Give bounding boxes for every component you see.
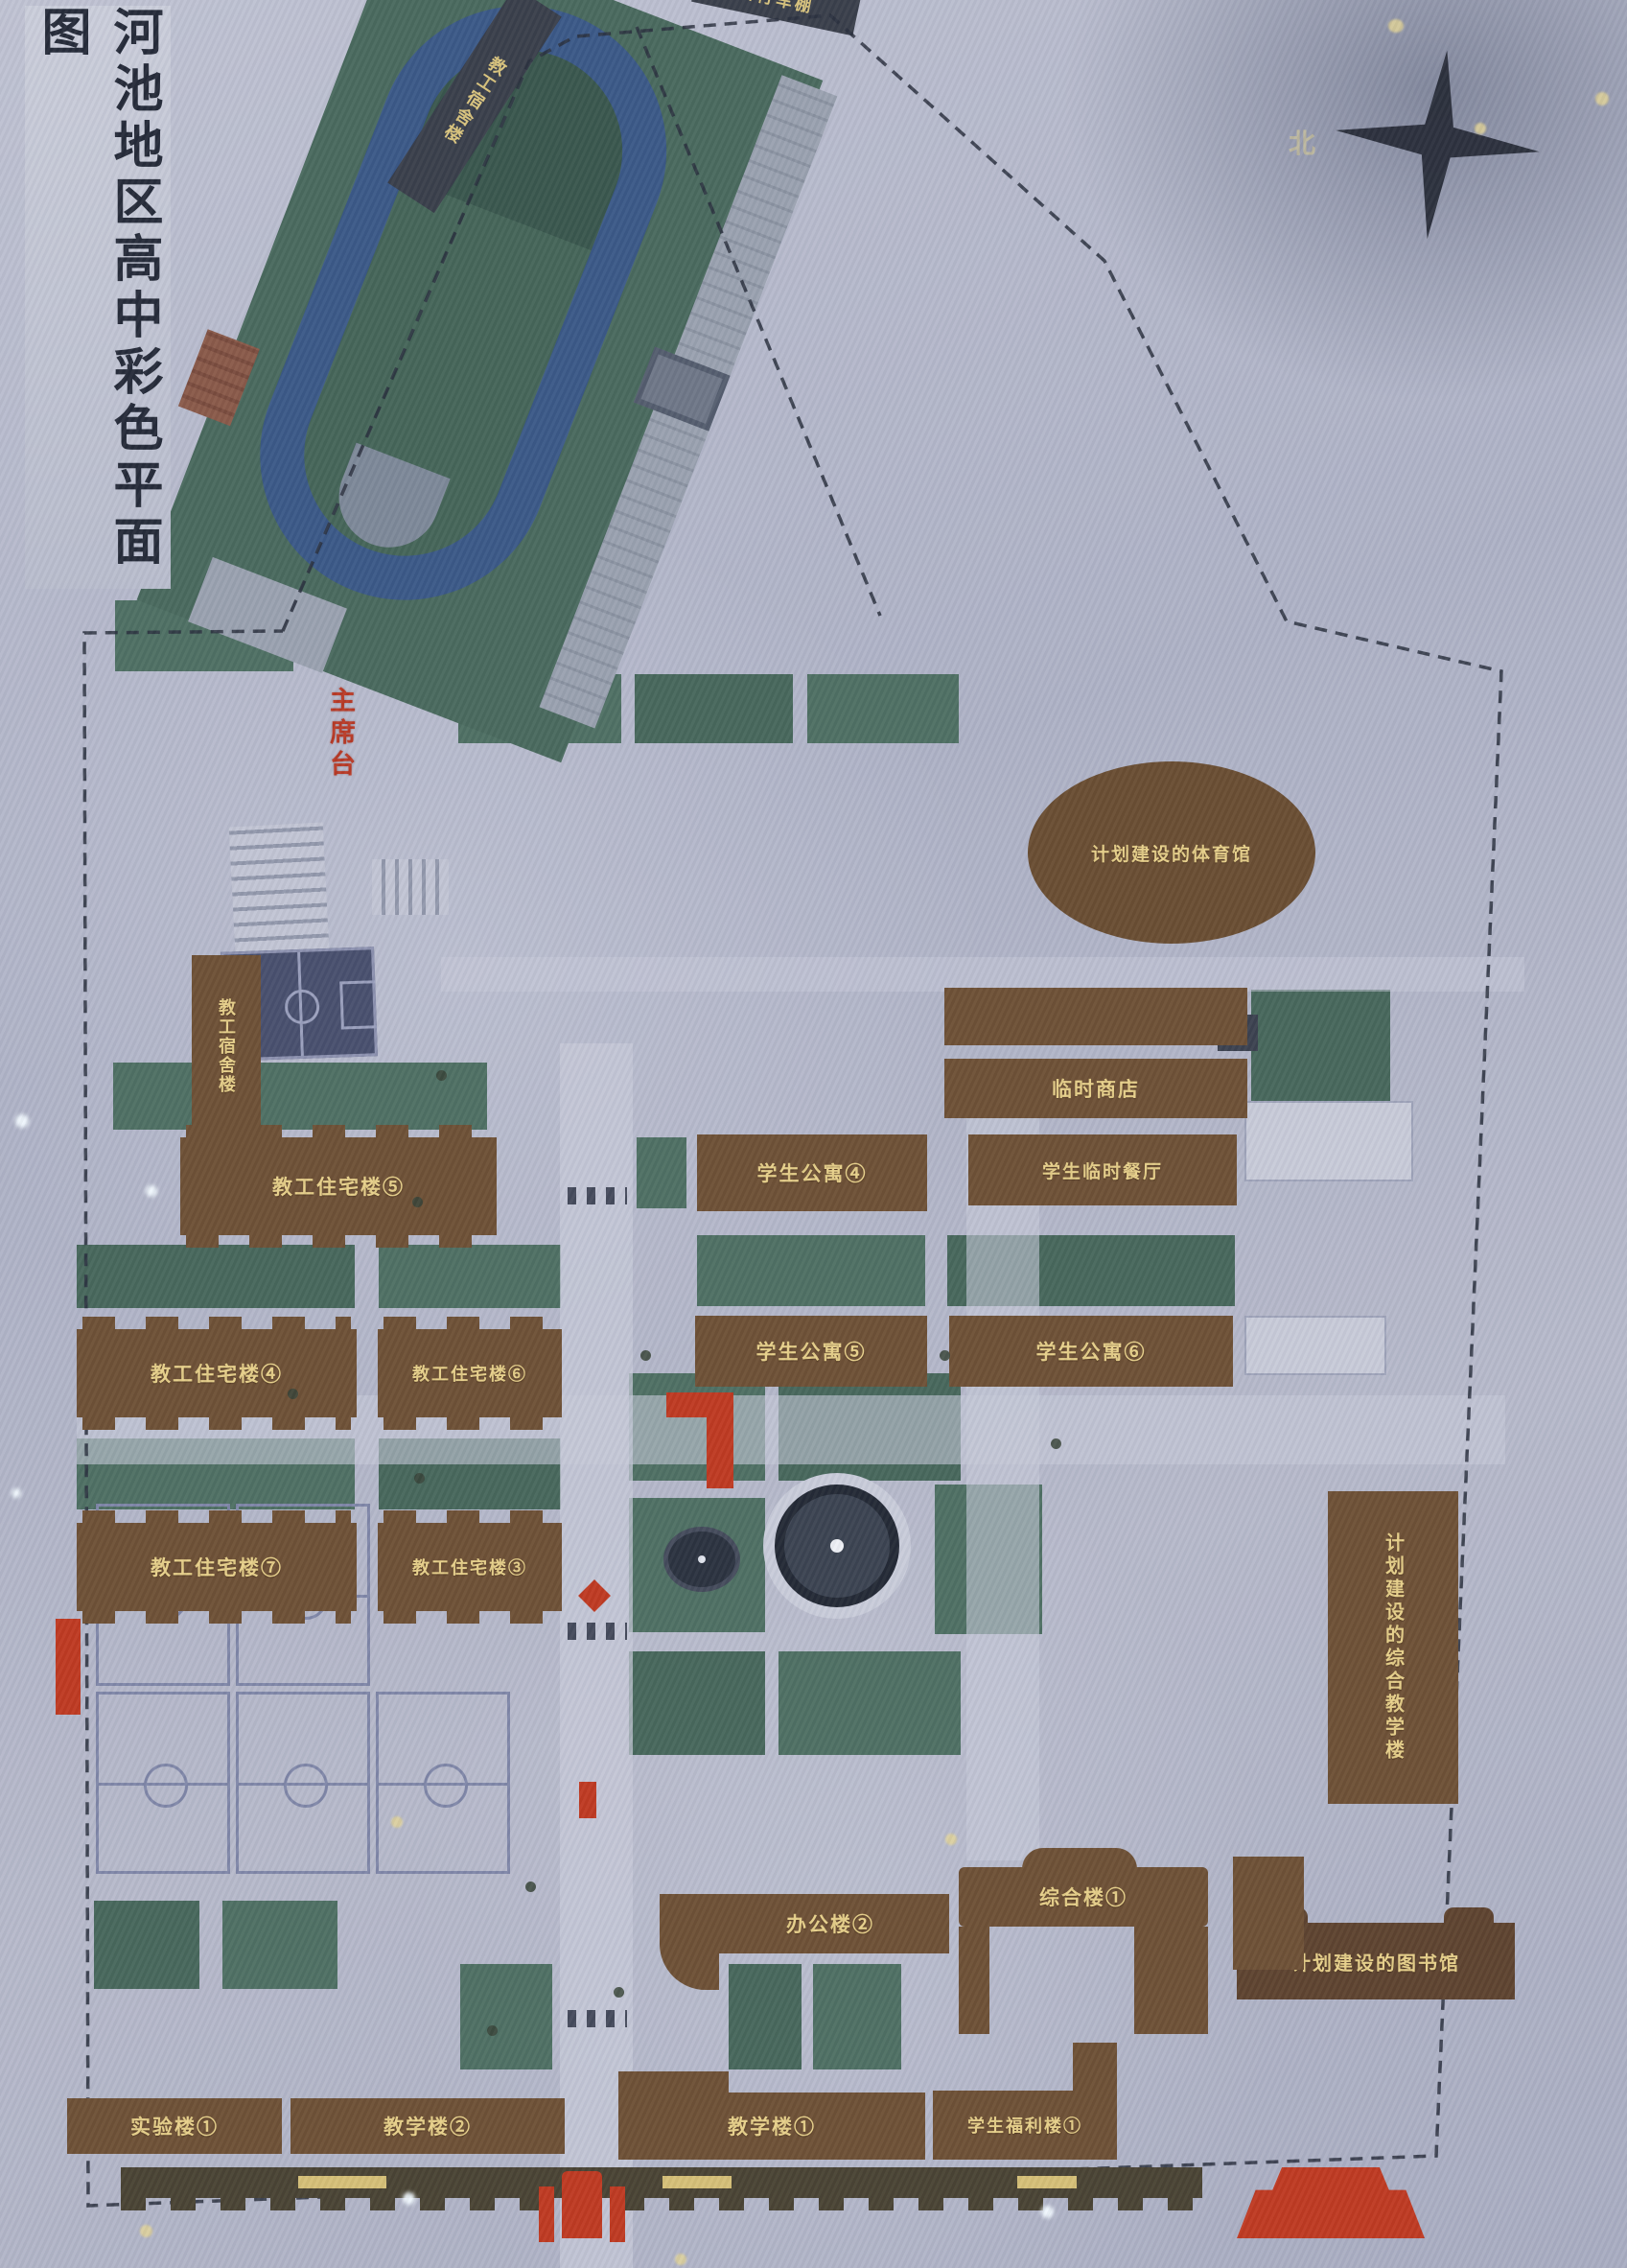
welfare-1-label: 学生福利楼① (967, 2113, 1082, 2138)
tree (288, 1389, 298, 1399)
photo-speck (1595, 92, 1609, 105)
lab-1-label: 实验楼① (130, 2112, 219, 2140)
track-dzone (324, 442, 451, 562)
lawn (77, 1245, 355, 1308)
complex-1-arch (1022, 1848, 1137, 1869)
plaza-ring (775, 1485, 899, 1607)
student-apartment-6: 学生公寓⑥ (949, 1316, 1233, 1387)
office-2-label: 办公楼② (786, 1909, 874, 1938)
student-apartment-6-label: 学生公寓⑥ (1036, 1337, 1147, 1366)
student-apartment-4: 学生公寓④ (697, 1134, 927, 1211)
complex-1-left-wing (959, 1927, 989, 2034)
lawn (637, 1137, 686, 1208)
tree (487, 2025, 498, 2036)
stairs (229, 823, 330, 954)
lawn (697, 1235, 925, 1306)
south-gate (539, 2171, 625, 2242)
crosswalk (568, 1187, 627, 1204)
lawn (460, 1964, 552, 2069)
photo-speck (1388, 19, 1404, 33)
planned-library-label: 计划建设的图书馆 (1291, 1948, 1460, 1976)
complex-1-label: 综合楼① (1039, 1882, 1127, 1911)
tree (525, 1882, 536, 1892)
lawn (113, 1063, 487, 1130)
photo-speck (15, 1114, 29, 1128)
staff-residence-5: 教工住宅楼⑤ (180, 1137, 497, 1235)
striped-walk (372, 859, 449, 915)
gate-roof (562, 2171, 602, 2238)
student-canteen-building: 学生临时餐厅 (968, 1134, 1237, 1205)
crosswalk (568, 1623, 627, 1640)
photo-speck (945, 1834, 957, 1845)
lawn (813, 1964, 901, 2069)
lawn (807, 674, 959, 743)
lab-building-1: 实验楼① (67, 2098, 282, 2154)
lawn (222, 1901, 337, 1989)
temp-shop-label: 临时商店 (1052, 1074, 1140, 1103)
lawn (379, 1245, 561, 1308)
staff-dorm-tower: 教工宿舍楼 (192, 955, 261, 1137)
complex-building-1: 综合楼① (959, 1846, 1208, 2034)
planned-gymnasium: 计划建设的体育馆 (1028, 761, 1315, 944)
complex-1-topbar: 综合楼① (959, 1867, 1208, 1927)
lawn (629, 1651, 765, 1755)
staff-residence-4: 教工住宅楼④ (77, 1329, 357, 1417)
tree (414, 1473, 425, 1484)
shop-row-upper-building (944, 988, 1247, 1045)
planned-complex-building: 计划建设的综合教学楼 (1328, 1491, 1458, 1804)
crosswalk (568, 2010, 627, 2027)
photo-speck (12, 1488, 21, 1498)
student-apartment-5-label: 学生公寓⑤ (756, 1337, 867, 1366)
road-east (966, 1105, 1039, 1860)
rostrum-label: 主席台 (322, 687, 360, 782)
photo-speck (140, 2225, 152, 2237)
tree (614, 1987, 624, 1998)
complex-1-right-wing (1134, 1927, 1208, 2034)
photo-speck (391, 1816, 403, 1828)
tree (412, 1197, 423, 1207)
lawn (729, 1964, 802, 2069)
auxiliary-block (1244, 1101, 1413, 1181)
teaching-building-1: 教学楼① (618, 2093, 925, 2160)
gate-pillar (539, 2186, 554, 2242)
central-plaza (763, 1473, 911, 1619)
staff-residence-6-label: 教工住宅楼⑥ (412, 1361, 527, 1386)
staff-residence-7: 教工住宅楼⑦ (77, 1523, 357, 1611)
tree (640, 1350, 651, 1361)
student-canteen-label: 学生临时餐厅 (1042, 1157, 1163, 1183)
court-center-circle (284, 989, 319, 1024)
gate-pillar (610, 2186, 625, 2242)
staff-residence-7-label: 教工住宅楼⑦ (151, 1553, 283, 1581)
tree (940, 1350, 950, 1361)
basketball-court (376, 1692, 510, 1874)
compass-star-icon (1325, 39, 1549, 249)
map-title: 河池地区高中彩色平面图 (25, 6, 171, 589)
teaching-1-label: 教学楼① (728, 2112, 816, 2140)
planned-complex-label: 计划建设的综合教学楼 (1380, 1532, 1407, 1763)
main-gate (1237, 2167, 1425, 2238)
photo-speck (146, 1185, 157, 1197)
tree (1051, 1438, 1061, 1449)
plaza-center (830, 1539, 844, 1553)
office-building-2: 办公楼② (711, 1894, 949, 1953)
annex-building (1233, 1857, 1304, 1970)
road-marker (579, 1782, 596, 1818)
staff-residence-6: 教工住宅楼⑥ (378, 1329, 562, 1417)
boundary-wall-shops (121, 2167, 1202, 2198)
auxiliary-block (1244, 1316, 1386, 1375)
photo-speck (1041, 2206, 1054, 2218)
tree (436, 1070, 447, 1081)
basketball-court (96, 1692, 230, 1874)
court-key (339, 980, 377, 1029)
compass-north-label: 北 (1289, 123, 1315, 161)
staff-residence-4-label: 教工住宅楼④ (151, 1359, 283, 1388)
photo-speck (403, 2192, 415, 2205)
red-kiosk (56, 1619, 81, 1715)
teaching-2-label: 教学楼② (384, 2112, 472, 2140)
teaching-building-2: 教学楼② (291, 2098, 565, 2154)
basketball-court (236, 1692, 370, 1874)
photo-speck (675, 2254, 686, 2265)
staff-residence-3-label: 教工住宅楼③ (412, 1555, 527, 1579)
temp-shop-building: 临时商店 (944, 1059, 1247, 1118)
student-apartment-5: 学生公寓⑤ (695, 1316, 927, 1387)
staff-residence-3: 教工住宅楼③ (378, 1523, 562, 1611)
planned-gymnasium-label: 计划建设的体育馆 (1091, 840, 1252, 866)
campus-map-photo: 主席台 教工宿舍楼 自行车棚 教工宿舍楼 教工住宅楼⑤ 教工住宅楼④ 教工住宅楼… (0, 0, 1627, 2268)
lawn (1251, 990, 1390, 1114)
lawn (779, 1651, 961, 1755)
lawn (94, 1901, 199, 1989)
student-apartment-4-label: 学生公寓④ (757, 1158, 868, 1187)
staff-residence-5-label: 教工住宅楼⑤ (272, 1172, 405, 1201)
flag-monument (707, 1392, 733, 1488)
pond-sculpture (663, 1527, 740, 1592)
lawn (635, 674, 793, 743)
photo-speck (1475, 123, 1486, 134)
road-north (441, 957, 1524, 992)
student-welfare-building: 学生福利楼① (933, 2091, 1117, 2160)
